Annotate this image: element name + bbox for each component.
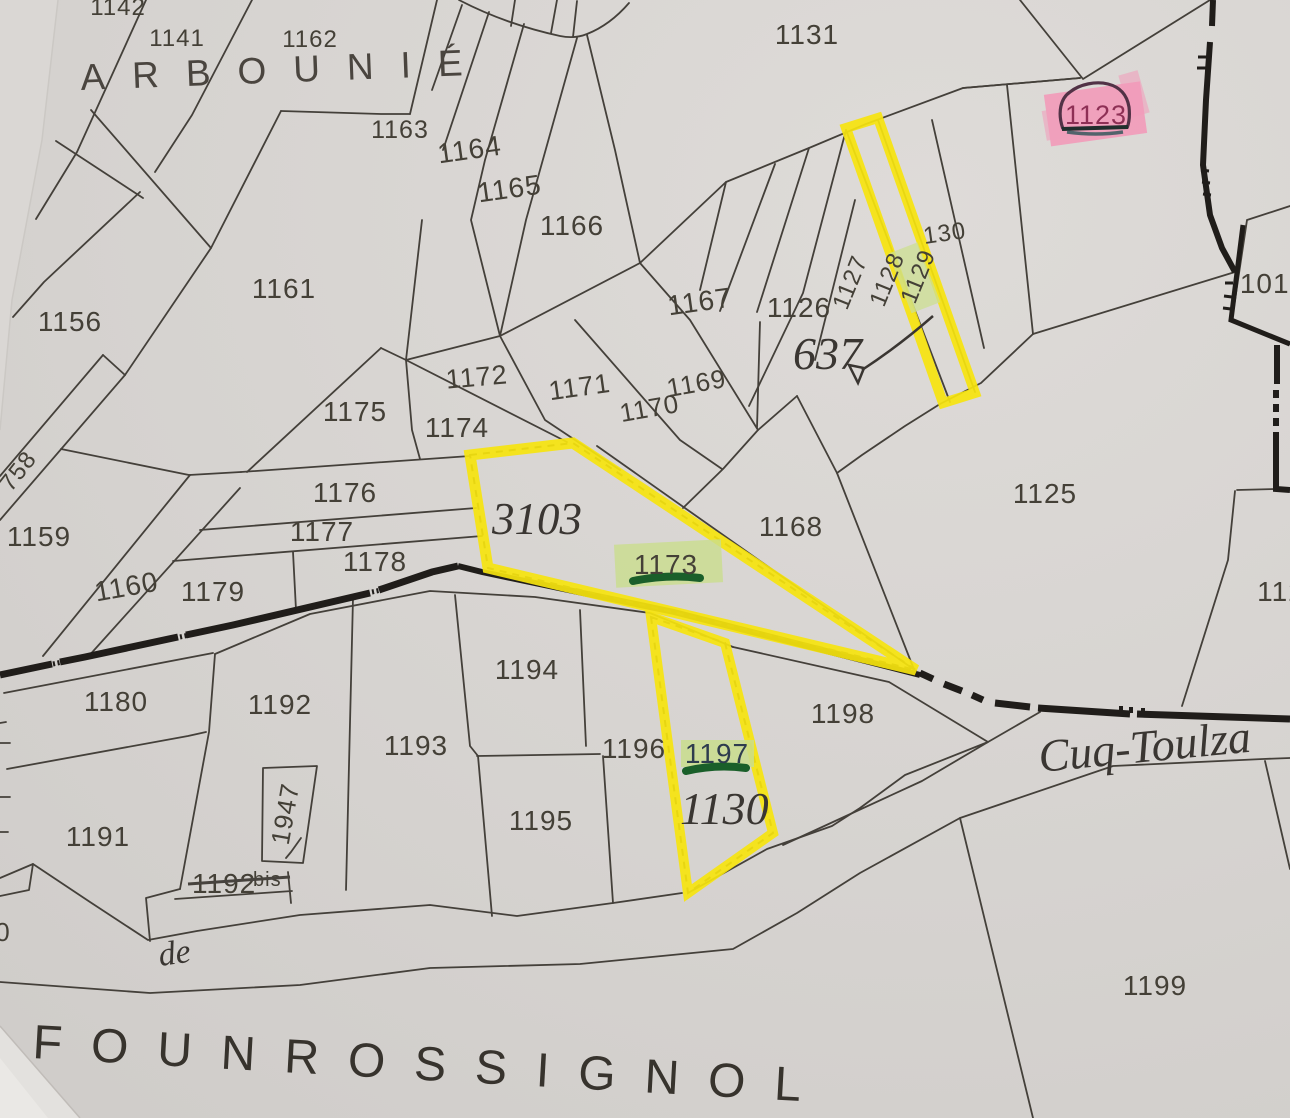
- svg-text:1126: 1126: [767, 292, 831, 323]
- svg-text:0: 0: [0, 917, 11, 947]
- svg-text:1172: 1172: [445, 359, 509, 394]
- svg-text:112: 112: [1257, 576, 1290, 607]
- svg-text:1191: 1191: [66, 821, 130, 852]
- svg-text:1163: 1163: [371, 116, 429, 144]
- svg-text:1177: 1177: [290, 516, 354, 547]
- svg-text:1142: 1142: [90, 0, 146, 21]
- svg-text:1141: 1141: [149, 25, 205, 52]
- svg-text:1015: 1015: [1240, 268, 1290, 299]
- svg-text:1197: 1197: [685, 738, 749, 769]
- svg-text:1195: 1195: [509, 805, 573, 836]
- svg-text:1131: 1131: [775, 19, 839, 50]
- svg-text:1175: 1175: [323, 396, 387, 427]
- svg-text:1166: 1166: [540, 210, 604, 241]
- svg-text:1168: 1168: [759, 511, 823, 542]
- svg-text:1199: 1199: [1123, 970, 1187, 1001]
- svg-text:1192: 1192: [248, 689, 312, 720]
- svg-text:1196: 1196: [602, 733, 666, 764]
- svg-text:de: de: [156, 933, 193, 974]
- svg-text:1125: 1125: [1013, 478, 1077, 509]
- svg-text:1173: 1173: [634, 549, 698, 580]
- svg-text:1178: 1178: [343, 546, 407, 577]
- svg-text:1194: 1194: [495, 654, 559, 685]
- svg-text:1130: 1130: [680, 783, 769, 834]
- svg-text:1198: 1198: [811, 698, 875, 729]
- svg-text:1193: 1193: [384, 730, 448, 761]
- svg-text:1161: 1161: [252, 273, 316, 304]
- svg-text:1179: 1179: [181, 576, 245, 607]
- svg-text:1176: 1176: [313, 477, 377, 508]
- svg-text:1174: 1174: [425, 412, 489, 443]
- svg-text:1156: 1156: [38, 306, 102, 337]
- svg-text:1180: 1180: [84, 686, 148, 717]
- svg-text:1162: 1162: [282, 26, 338, 53]
- svg-text:1123: 1123: [1065, 100, 1127, 130]
- svg-text:3103: 3103: [491, 494, 582, 544]
- svg-text:1159: 1159: [7, 521, 71, 552]
